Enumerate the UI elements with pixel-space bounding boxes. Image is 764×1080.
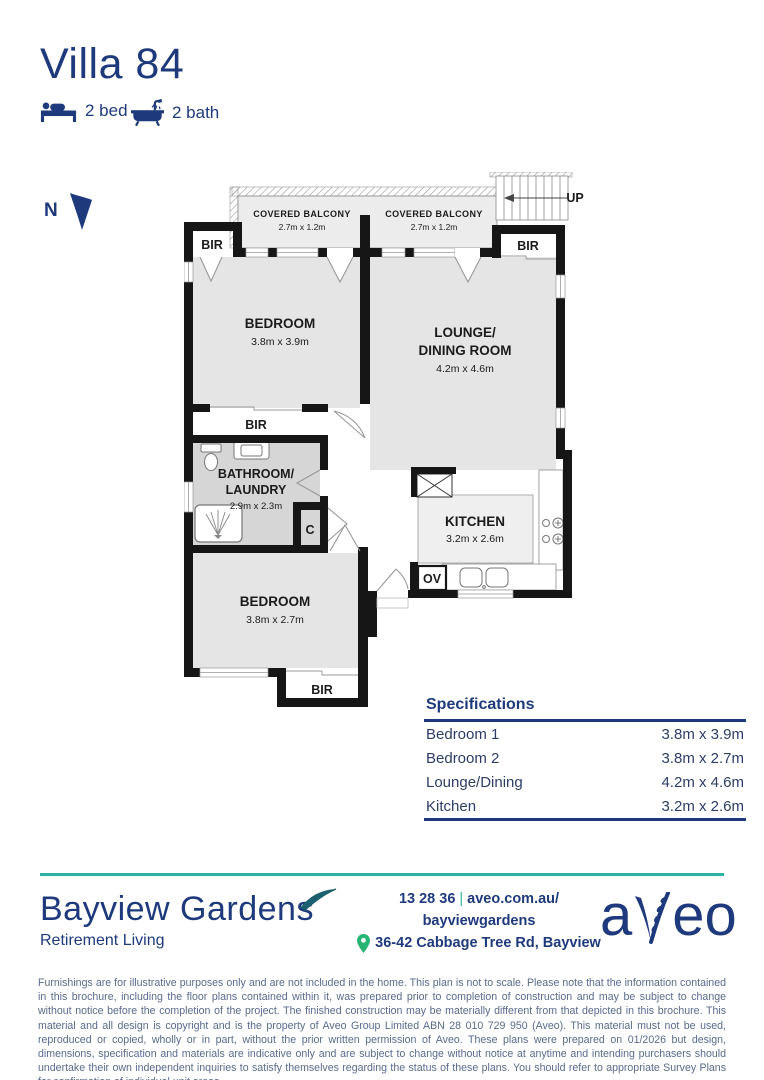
spec-label: Bedroom 2 bbox=[426, 750, 499, 767]
north-marker: N bbox=[44, 188, 104, 238]
footer-divider bbox=[40, 873, 724, 876]
street-address: 36-42 Cabbage Tree Rd, Bayview bbox=[375, 932, 601, 954]
spec-label: Bedroom 1 bbox=[426, 726, 499, 743]
phone-number: 13 28 36 bbox=[399, 891, 455, 907]
bedroom2-dims: 3.8m x 2.7m bbox=[246, 614, 304, 626]
bir-label-topleft: BIR bbox=[201, 238, 223, 252]
spec-value: 4.2m x 4.6m bbox=[661, 774, 744, 791]
website-url[interactable]: aveo.com.au/ bbox=[467, 891, 559, 907]
table-row: Kitchen 3.2m x 2.6m bbox=[424, 794, 746, 818]
aveo-logo-leaf-v-icon bbox=[633, 892, 671, 944]
lounge-label-2: DINING ROOM bbox=[419, 343, 512, 358]
bed-count: 2 bed bbox=[40, 98, 128, 123]
balcony1-dims: 2.7m x 1.2m bbox=[279, 222, 326, 232]
kitchen-island bbox=[418, 495, 533, 563]
table-row: Bedroom 1 3.8m x 3.9m bbox=[424, 722, 746, 746]
separator: | bbox=[455, 891, 467, 907]
spec-label: Kitchen bbox=[426, 798, 476, 815]
bedroom1-dims: 3.8m x 3.9m bbox=[251, 336, 309, 348]
aveo-logo-a: a bbox=[600, 884, 632, 948]
brochure-page: Villa 84 2 bed 2 bath N bbox=[0, 0, 764, 1080]
bathroom-label-2: LAUNDRY bbox=[226, 483, 287, 497]
balcony2-label: COVERED BALCONY bbox=[385, 209, 483, 219]
table-row: Lounge/Dining 4.2m x 4.6m bbox=[424, 770, 746, 794]
balcony2-dims: 2.7m x 1.2m bbox=[411, 222, 458, 232]
aveo-logo: a eo bbox=[600, 884, 737, 948]
aveo-logo-eo: eo bbox=[672, 884, 737, 948]
entry-step bbox=[377, 598, 408, 608]
kitchen-label: KITCHEN bbox=[445, 514, 505, 529]
brand-tagline: Retirement Living bbox=[40, 932, 314, 950]
address-line: 36-42 Cabbage Tree Rd, Bayview bbox=[348, 932, 610, 954]
contact-block: 13 28 36|aveo.com.au/ bayviewgardens 36-… bbox=[348, 888, 610, 954]
cupboard-label: C bbox=[305, 523, 314, 537]
bir-label-topright: BIR bbox=[517, 239, 539, 253]
bed-icon bbox=[40, 98, 77, 123]
kitchen-dims: 3.2m x 2.6m bbox=[446, 533, 504, 545]
table-row: Bedroom 2 3.8m x 2.7m bbox=[424, 746, 746, 770]
balcony1-label: COVERED BALCONY bbox=[253, 209, 351, 219]
lounge-label-1: LOUNGE/ bbox=[434, 325, 496, 340]
stairs bbox=[496, 176, 568, 220]
bath-count: 2 bath bbox=[131, 98, 219, 127]
bed-count-label: 2 bed bbox=[85, 101, 128, 121]
specifications-table: Specifications Bedroom 1 3.8m x 3.9m Bed… bbox=[424, 696, 746, 821]
bathroom-dims: 2.9m x 2.3m bbox=[230, 501, 282, 512]
website-url-2[interactable]: bayviewgardens bbox=[348, 910, 610, 932]
lounge-dims: 4.2m x 4.6m bbox=[436, 363, 494, 375]
balcony-hatch-top bbox=[232, 187, 497, 196]
spec-value: 3.2m x 2.6m bbox=[661, 798, 744, 815]
spec-label: Lounge/Dining bbox=[426, 774, 523, 791]
brand-block: Bayview Gardens Retirement Living bbox=[40, 890, 314, 950]
bath-count-label: 2 bath bbox=[172, 103, 219, 123]
spec-divider-bottom bbox=[424, 818, 746, 821]
bedroom1-floor bbox=[193, 257, 360, 408]
door-gap bbox=[327, 248, 353, 257]
bathroom-label-1: BATHROOM/ bbox=[218, 467, 295, 481]
bath-icon bbox=[131, 98, 164, 127]
location-pin-icon bbox=[357, 934, 370, 953]
floor-plan: UP bbox=[184, 172, 604, 712]
bir-label-bottom: BIR bbox=[311, 683, 333, 697]
bedroom2-label: BEDROOM bbox=[240, 594, 311, 609]
spec-value: 3.8m x 3.9m bbox=[661, 726, 744, 743]
specifications-heading: Specifications bbox=[426, 696, 746, 714]
oven-label: OV bbox=[423, 572, 442, 586]
page-title: Villa 84 bbox=[40, 40, 184, 89]
contact-line-1: 13 28 36|aveo.com.au/ bbox=[348, 888, 610, 910]
up-label: UP bbox=[566, 191, 583, 205]
disclaimer-text: Furnishings are for illustrative purpose… bbox=[38, 976, 726, 1080]
bedroom1-label: BEDROOM bbox=[245, 316, 316, 331]
kitchen-bench-right bbox=[539, 470, 563, 570]
spec-value: 3.8m x 2.7m bbox=[661, 750, 744, 767]
north-label: N bbox=[44, 200, 58, 222]
pantry-box bbox=[417, 474, 452, 497]
bir-label-mid: BIR bbox=[245, 418, 267, 432]
leaf-icon bbox=[296, 886, 342, 912]
door-gap bbox=[455, 248, 480, 257]
bedroom2-floor bbox=[193, 553, 358, 668]
brand-name: Bayview Gardens bbox=[40, 890, 314, 929]
